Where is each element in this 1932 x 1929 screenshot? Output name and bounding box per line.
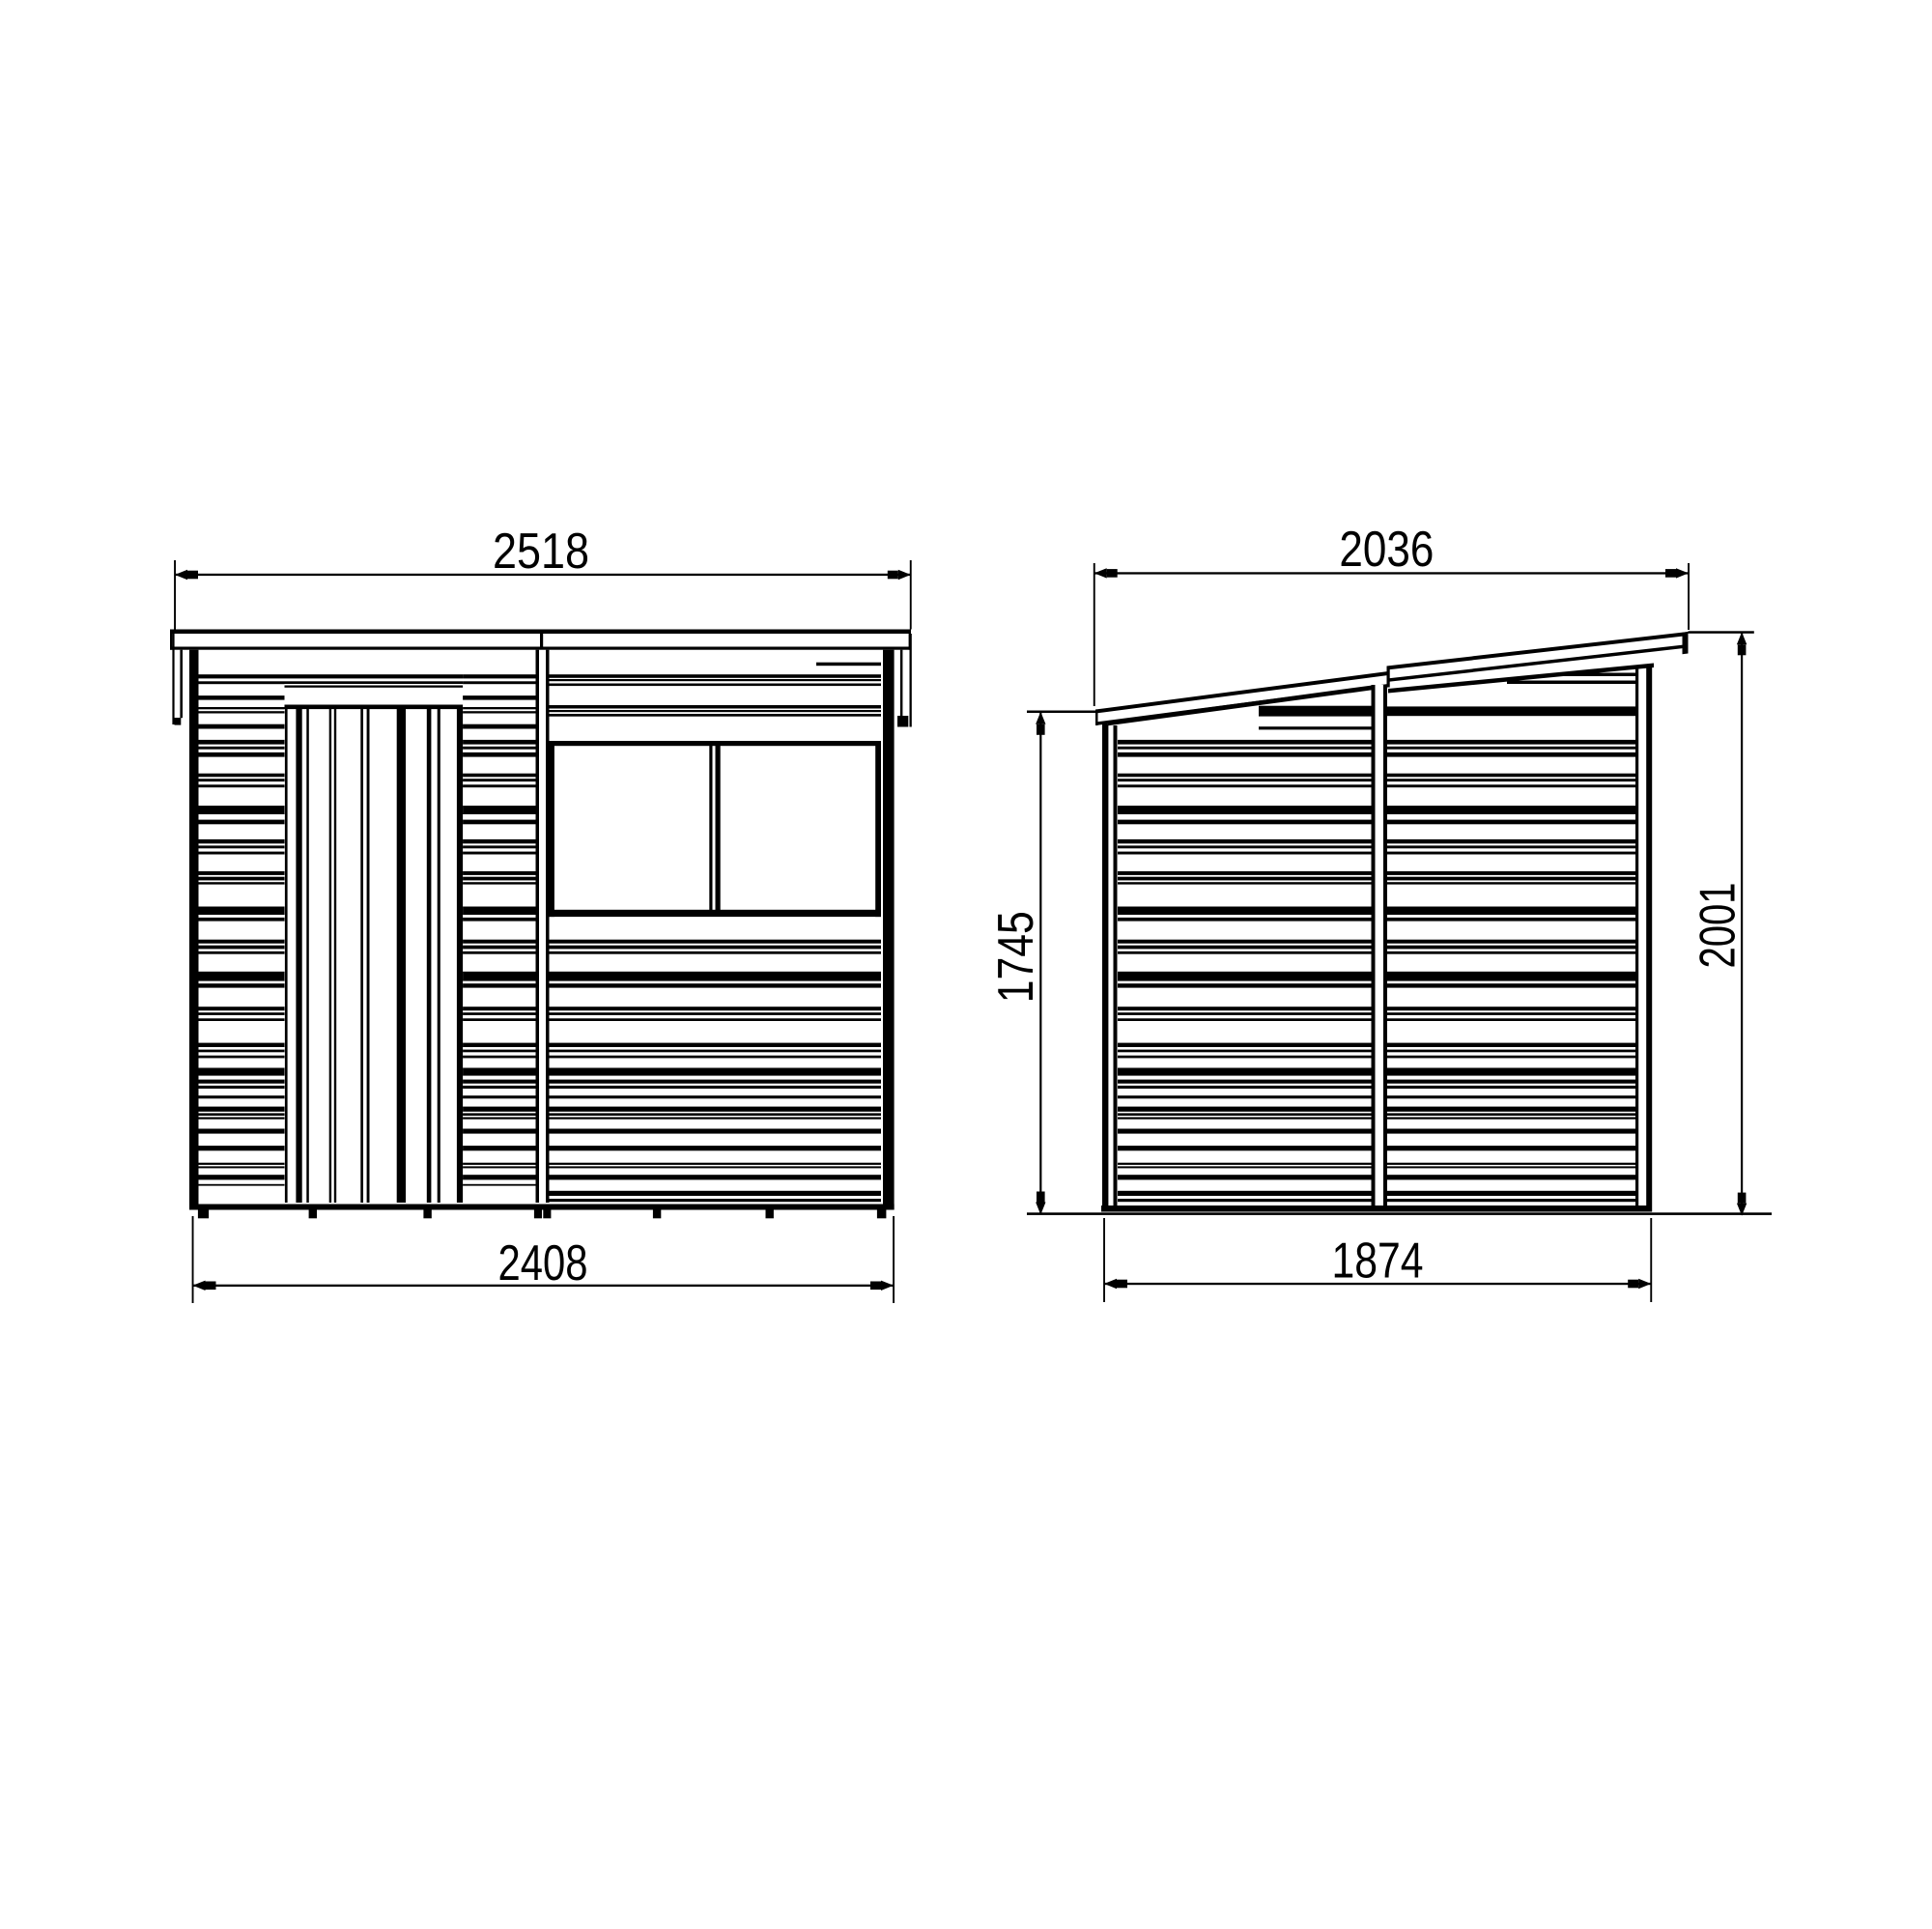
svg-text:2408: 2408 [498,1235,588,1291]
svg-text:2036: 2036 [1339,522,1434,578]
svg-text:2001: 2001 [1690,883,1747,969]
svg-text:1874: 1874 [1332,1234,1424,1290]
svg-text:2518: 2518 [493,524,589,580]
svg-text:1745: 1745 [988,911,1044,1003]
